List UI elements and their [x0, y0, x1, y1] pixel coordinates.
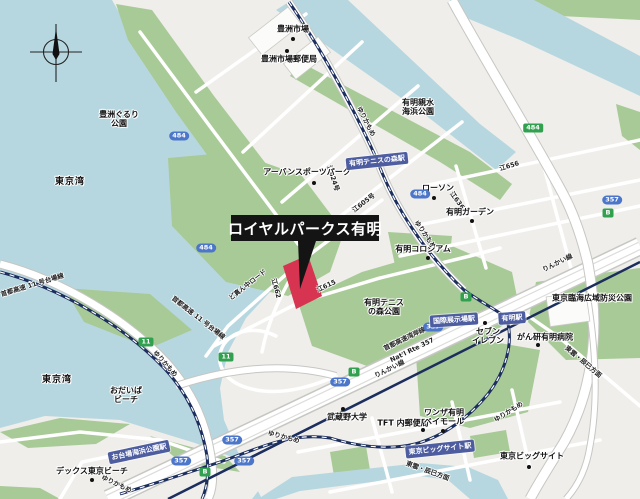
base-map [0, 0, 640, 499]
property-callout: ロイヤルパークス有明 [231, 215, 379, 241]
map-canvas: 首都高速 11 号台場線首都高速 11 号台場線ゆりかもめゆりかもめゆりかもめゆ… [0, 0, 640, 499]
property-callout-label: ロイヤルパークス有明 [228, 218, 382, 239]
building-bousai-hq [546, 291, 590, 326]
